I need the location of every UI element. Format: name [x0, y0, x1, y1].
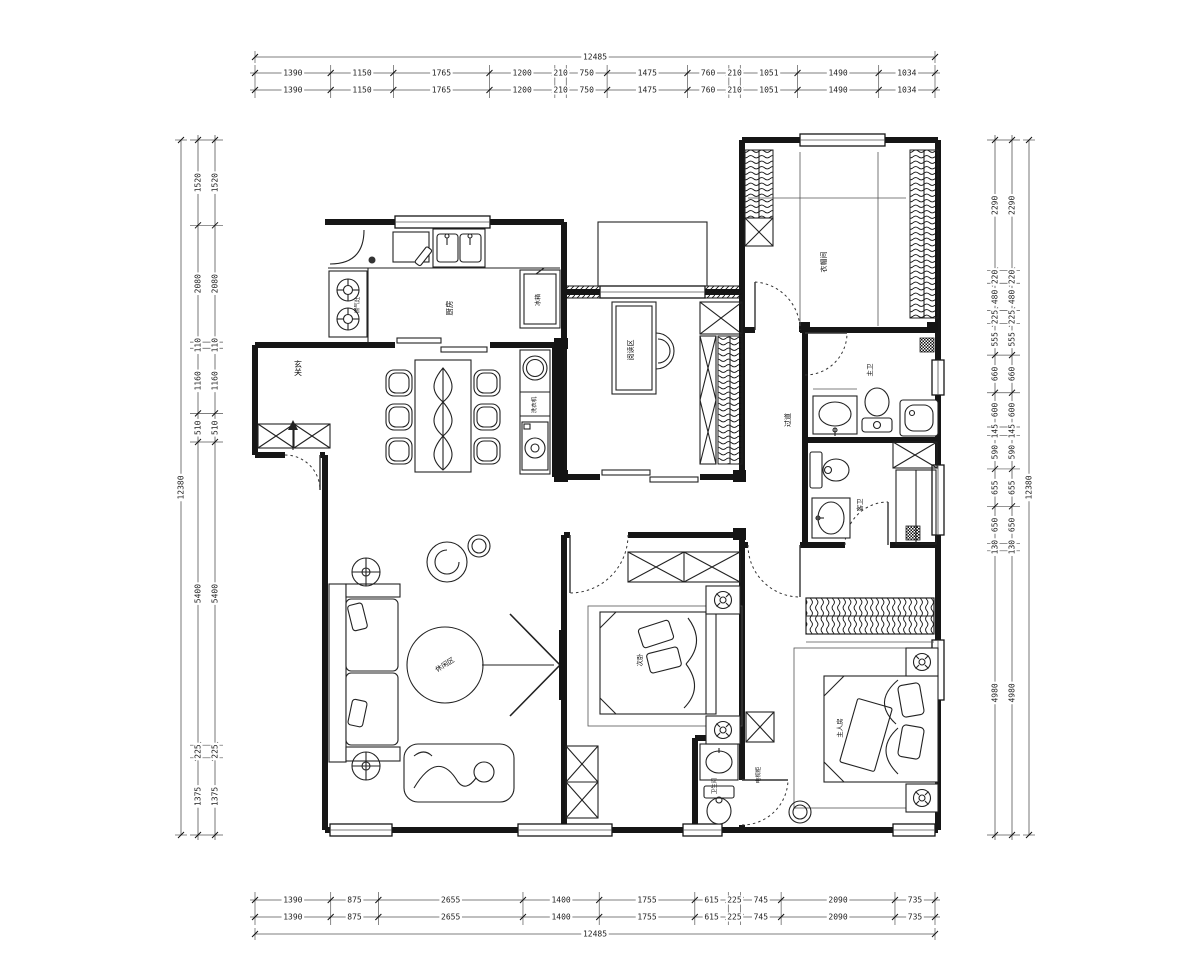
dim-chain-left: 1520208011011605105400225137515202080110…	[175, 135, 223, 840]
dim-label: 655	[991, 480, 1000, 495]
dim-chain-right: 2290220480225555660600145590655650130498…	[987, 135, 1035, 840]
appliance-label-laundry: 洗衣机	[530, 396, 538, 413]
dim-label: 735	[908, 913, 923, 922]
ceiling-lamp-icon	[352, 752, 380, 780]
kitchen-sliding-door	[397, 338, 487, 352]
dim-label: 12485	[583, 53, 607, 62]
entry-door	[285, 455, 320, 490]
cabinet	[566, 746, 598, 818]
study-closet	[700, 302, 742, 464]
dim-label: 130	[1008, 540, 1017, 555]
dim-label: 12380	[177, 475, 186, 499]
dim-label: 1160	[194, 371, 203, 390]
dim-label: 225	[211, 744, 220, 759]
dim-label: 2290	[991, 196, 1000, 215]
floor-plan-canvas: 1390115017651200210750147576021010511490…	[0, 0, 1200, 960]
dim-label: 2655	[441, 896, 460, 905]
dim-label: 745	[754, 896, 769, 905]
toilet	[704, 786, 734, 824]
dim-label: 4980	[991, 683, 1000, 702]
dim-label: 1475	[638, 86, 657, 95]
appliance-label-stove: 燃气灶	[353, 296, 361, 313]
entry-area	[258, 420, 330, 450]
dim-label: 220	[991, 270, 1000, 285]
dim-label: 1755	[637, 896, 656, 905]
dim-label: 480	[991, 290, 1000, 305]
dish-rack	[393, 232, 432, 266]
dim-label: 1390	[283, 69, 302, 78]
room-label-living: 休闲区	[433, 655, 456, 674]
dim-label: 650	[991, 517, 1000, 532]
dim-label: 12485	[583, 930, 607, 939]
bath-closet	[893, 442, 937, 544]
bay-platform	[598, 222, 707, 286]
room-label-kitchen: 厨房	[444, 301, 454, 316]
dim-label: 1765	[432, 86, 451, 95]
dim-label: 1390	[283, 913, 302, 922]
room-label-entry: 玄关	[294, 359, 303, 377]
dim-label: 1200	[513, 86, 532, 95]
dim-label: 590	[991, 445, 1000, 460]
dim-label: 2655	[441, 913, 460, 922]
dim-label: 1765	[432, 69, 451, 78]
toilet	[810, 452, 849, 488]
sofa	[329, 584, 400, 762]
study-sliding-door	[602, 470, 698, 482]
dim-label: 600	[1008, 402, 1017, 417]
ceiling-lamp-icon	[352, 558, 380, 586]
floor-plan-page: 1390115017651200210750147576021010511490…	[0, 0, 1200, 960]
lounge-chair	[427, 535, 490, 582]
master-bedroom-area	[746, 598, 938, 823]
dim-label: 1150	[352, 69, 371, 78]
dim-label: 1375	[194, 787, 203, 806]
dim-label: 225	[991, 310, 1000, 325]
tv-screen	[559, 630, 565, 700]
floor-drain-icon	[920, 338, 934, 352]
nightstand	[906, 648, 938, 676]
dim-label: 760	[701, 86, 716, 95]
dim-label: 210	[553, 86, 568, 95]
dim-label: 110	[211, 338, 220, 353]
closet	[628, 552, 740, 582]
dim-chain-top: 1390115017651200210750147576021010511490…	[250, 51, 940, 98]
dim-label: 225	[727, 913, 742, 922]
washbasin	[813, 389, 857, 436]
room-label-study: 阅读区	[626, 340, 635, 361]
room-label-bath-master: 主卫	[865, 363, 874, 377]
dim-label: 1400	[551, 913, 570, 922]
dim-label: 210	[727, 69, 742, 78]
dim-label: 1034	[897, 69, 916, 78]
dim-label: 735	[908, 896, 923, 905]
bed	[600, 612, 716, 714]
dim-label: 875	[347, 913, 362, 922]
dim-label: 130	[991, 540, 1000, 555]
nightstand	[706, 586, 740, 614]
dim-label: 2090	[828, 913, 847, 922]
nightstand	[906, 784, 938, 812]
nightstand	[706, 716, 740, 744]
dim-label: 2290	[1008, 196, 1017, 215]
dim-label: 2080	[194, 274, 203, 293]
corner-counter	[330, 230, 364, 264]
dim-label: 615	[704, 896, 719, 905]
dim-label: 210	[553, 69, 568, 78]
dim-label: 650	[1008, 517, 1017, 532]
dim-label: 1200	[513, 69, 532, 78]
cloakroom-area	[745, 150, 938, 326]
bath-master-door	[805, 333, 847, 375]
bath-guest-door	[845, 502, 888, 545]
room-label-master: 主人房	[835, 718, 844, 738]
dim-label: 1375	[211, 787, 220, 806]
dim-label: 210	[727, 86, 742, 95]
drain-icon	[369, 257, 376, 264]
dim-label: 660	[991, 367, 1000, 382]
kitchen-area	[328, 229, 560, 343]
dim-label: 750	[579, 69, 594, 78]
study-area	[612, 302, 742, 464]
master-bedroom-door	[748, 545, 800, 597]
dim-label: 745	[754, 913, 769, 922]
dim-label: 510	[194, 420, 203, 435]
dim-label: 5400	[194, 584, 203, 603]
washbasin	[812, 498, 850, 538]
small-bath-area	[700, 744, 738, 824]
gas-stove	[329, 271, 367, 337]
room-label-cloakroom: 衣帽间	[819, 252, 828, 273]
label-tv-cabinet: 电视柜	[754, 766, 762, 783]
dim-label: 5400	[211, 584, 220, 603]
living-area	[329, 535, 565, 802]
room-label-bedroom2: 次卧	[635, 653, 644, 667]
dim-label: 12380	[1025, 475, 1034, 499]
chaise	[404, 744, 514, 802]
dim-label: 145	[1008, 424, 1017, 439]
appliance-label-fridge: 冰箱	[534, 294, 542, 306]
room-label-hallway: 过道	[783, 413, 792, 427]
dim-label: 110	[194, 338, 203, 353]
small-bath-door	[742, 780, 788, 825]
dim-label: 1520	[194, 173, 203, 192]
dim-label: 1490	[828, 86, 847, 95]
dim-label: 1390	[283, 896, 302, 905]
dim-label: 1051	[759, 86, 778, 95]
washing-machine	[522, 422, 548, 470]
dim-label: 2080	[211, 274, 220, 293]
dim-label: 1400	[551, 896, 570, 905]
dining-area	[386, 360, 500, 472]
bath-master-area	[813, 338, 938, 436]
dim-label: 1390	[283, 86, 302, 95]
room-label-small-bath: 卫生间	[710, 778, 718, 795]
bedroom2-door	[570, 535, 628, 593]
dim-label: 655	[1008, 480, 1017, 495]
dim-label: 1150	[352, 86, 371, 95]
dim-label: 1520	[211, 173, 220, 192]
cloakroom-door	[755, 282, 800, 330]
dim-label: 600	[991, 402, 1000, 417]
desk-chair	[656, 333, 674, 369]
dim-label: 555	[1008, 332, 1017, 347]
dim-label: 1051	[759, 69, 778, 78]
room-label-bath-guest: 客卫	[855, 498, 864, 512]
dim-label: 1160	[211, 371, 220, 390]
toilet	[862, 388, 892, 432]
dim-label: 615	[704, 913, 719, 922]
dim-label: 225	[1008, 310, 1017, 325]
dim-label: 875	[347, 896, 362, 905]
bathtub	[900, 400, 938, 436]
dim-label: 225	[194, 744, 203, 759]
bath-guest-area	[810, 442, 937, 544]
dim-label: 480	[1008, 290, 1017, 305]
dim-chain-bottom: 1390875265514001755615225745209073513908…	[250, 892, 940, 940]
dim-label: 1490	[828, 69, 847, 78]
wardrobe	[806, 598, 934, 642]
dim-label: 660	[1008, 367, 1017, 382]
dim-label: 4980	[1008, 683, 1017, 702]
dim-label: 510	[211, 420, 220, 435]
kitchen-sink	[433, 229, 485, 267]
tv-projection-arrow	[482, 614, 565, 716]
dim-label: 1755	[637, 913, 656, 922]
dim-label: 220	[1008, 270, 1017, 285]
dim-label: 1475	[638, 69, 657, 78]
dim-label: 750	[579, 86, 594, 95]
dim-label: 555	[991, 332, 1000, 347]
dim-label: 225	[727, 896, 742, 905]
ottoman	[789, 801, 811, 823]
dim-label: 1034	[897, 86, 916, 95]
dim-label: 145	[991, 424, 1000, 439]
dim-label: 2090	[828, 896, 847, 905]
dim-label: 760	[701, 69, 716, 78]
dim-label: 590	[1008, 445, 1017, 460]
tv-cabinet	[746, 712, 774, 742]
